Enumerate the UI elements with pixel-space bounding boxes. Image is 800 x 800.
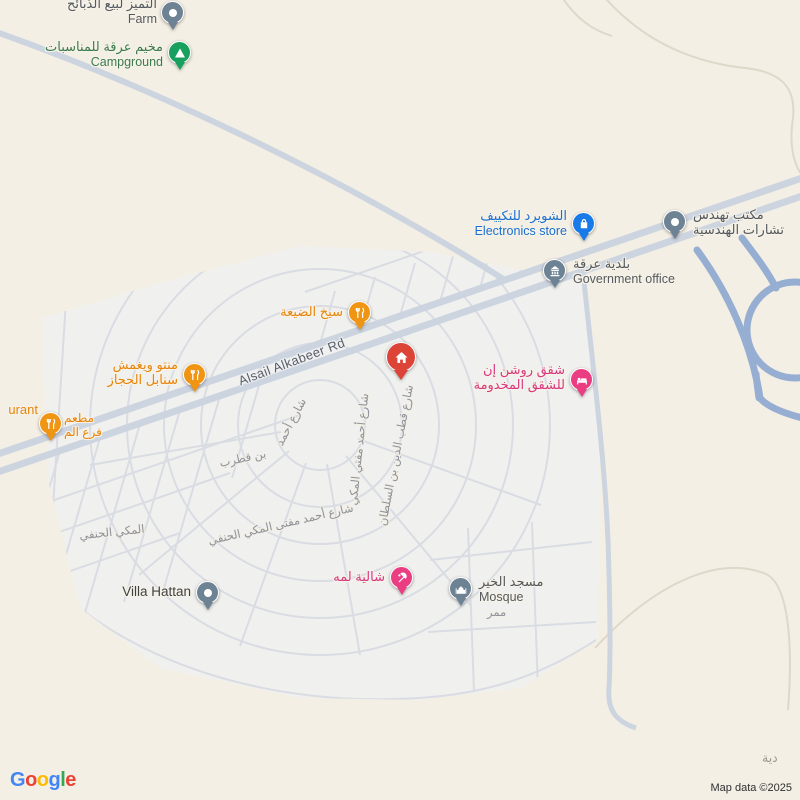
villa-hattan-pin[interactable] — [196, 581, 219, 604]
district-label-partial: دية — [762, 751, 778, 765]
government-office-label[interactable]: بلدية عرقة Government office — [573, 257, 675, 286]
logo-letter: G — [10, 769, 25, 791]
grill-restaurant-pin[interactable] — [348, 301, 371, 324]
apartments-name-line1: شقق روشن إن — [474, 363, 565, 378]
map-attribution: Map data ©2025 — [711, 782, 793, 794]
campground-label[interactable]: مخيم عرقة للمناسبات Campground — [45, 40, 163, 69]
farm-pin[interactable] — [161, 1, 184, 24]
logo-letter: o — [37, 769, 49, 791]
campground-name: مخيم عرقة للمناسبات — [45, 40, 163, 55]
mosque-pin[interactable] — [449, 577, 472, 600]
house-result-pin[interactable] — [386, 342, 416, 372]
mosque-category: Mosque — [479, 590, 543, 604]
logo-letter: e — [65, 769, 76, 791]
farm-category: Farm — [67, 12, 157, 26]
dot-icon — [167, 7, 179, 19]
edge-restaurant-pin[interactable] — [39, 412, 62, 435]
logo-letter: g — [49, 769, 61, 791]
grill-restaurant-name: سيخ الضيعة — [280, 305, 343, 320]
map-canvas[interactable]: Alsail Alkabeer Rd شارع أحمد مفتي المكي … — [0, 0, 800, 800]
farm-label[interactable]: التميز لبيع الذبائح Farm — [67, 0, 157, 26]
edge-restaurant-label-en[interactable]: urant — [8, 403, 38, 418]
dot-icon — [669, 216, 681, 228]
government-office-category: Government office — [573, 272, 675, 286]
government-office-name: بلدية عرقة — [573, 257, 675, 272]
google-logo[interactable]: Google — [10, 769, 76, 792]
mosque-label[interactable]: مسجد الخير Mosque — [479, 575, 543, 604]
farm-name: التميز لبيع الذبائح — [67, 0, 157, 12]
electronics-category: Electronics store — [475, 224, 567, 238]
edge-restaurant-label-ar[interactable]: مطعم فرع الم — [64, 412, 102, 439]
chalet-name: شالية لمه — [333, 570, 385, 585]
highway-ramps — [697, 238, 800, 419]
villa-hattan-label[interactable]: Villa Hattan — [122, 584, 191, 599]
edge-restaurant-name-line2: فرع الم — [64, 426, 102, 440]
bed-icon — [576, 374, 588, 386]
grill-restaurant-label[interactable]: سيخ الضيعة — [280, 305, 343, 320]
house-icon — [394, 350, 409, 365]
chalet-pin[interactable] — [390, 566, 413, 589]
campground-pin[interactable] — [168, 41, 191, 64]
beach-umbrella-icon — [396, 572, 408, 584]
manto-restaurant-pin[interactable] — [183, 363, 206, 386]
engineering-office-label[interactable]: مكتب تهندس تشارات الهندسية — [693, 208, 784, 237]
restaurant-icon — [189, 369, 201, 381]
tent-icon — [174, 47, 186, 59]
apartments-label[interactable]: شقق روشن إن للشقق المخدومة — [474, 363, 565, 392]
electronics-pin[interactable] — [572, 212, 595, 235]
mosque-icon — [455, 583, 467, 595]
restaurant-icon — [45, 418, 57, 430]
logo-letter: o — [25, 769, 37, 791]
engineering-office-name-line2: تشارات الهندسية — [693, 223, 784, 238]
chalet-label[interactable]: شالية لمه — [333, 570, 385, 585]
restaurant-icon — [354, 307, 366, 319]
edge-restaurant-name-line1: مطعم — [64, 412, 102, 426]
engineering-office-name-line1: مكتب تهندس — [693, 208, 784, 223]
government-office-pin[interactable] — [543, 259, 566, 282]
manto-restaurant-name-line1: منتو ويغمش — [108, 358, 178, 373]
campground-category: Campground — [45, 55, 163, 69]
manto-restaurant-label[interactable]: منتو ويغمش سنابل الحجاز — [108, 358, 178, 387]
engineering-office-pin[interactable] — [663, 210, 686, 233]
government-building-icon — [549, 265, 561, 277]
shopping-bag-icon — [578, 218, 590, 230]
dot-icon — [202, 587, 214, 599]
electronics-name: الشويرد للتكييف — [475, 209, 567, 224]
electronics-label[interactable]: الشويرد للتكييف Electronics store — [475, 209, 567, 238]
apartments-pin[interactable] — [570, 368, 593, 391]
mosque-name: مسجد الخير — [479, 575, 543, 590]
street-label-mamarr: ممر — [487, 607, 506, 620]
manto-restaurant-name-line2: سنابل الحجاز — [108, 373, 178, 388]
apartments-name-line2: للشقق المخدومة — [474, 378, 565, 393]
